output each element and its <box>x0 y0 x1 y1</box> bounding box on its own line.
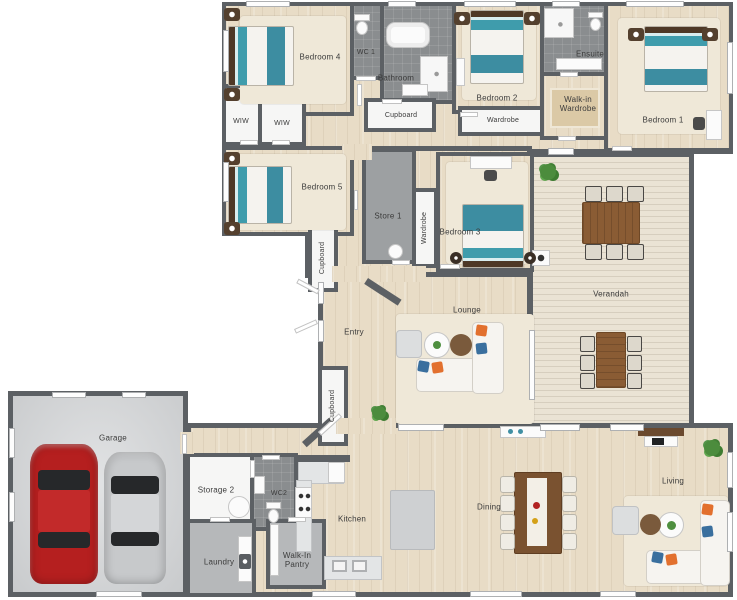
label-store1: Store 1 <box>374 211 401 220</box>
door-walkin-wardrobe <box>558 136 576 141</box>
wall-kitchen-north <box>296 455 350 462</box>
window <box>52 392 86 398</box>
desk-bedroom3 <box>470 156 512 169</box>
opening-hall-entry <box>332 266 426 282</box>
flower-decor <box>533 502 540 509</box>
ensuite-vanity <box>556 58 602 70</box>
outdoor-chair <box>580 373 595 389</box>
door-ensuite <box>560 72 578 77</box>
door-bedroom5 <box>354 190 358 210</box>
label-verandah: Verandah <box>593 289 629 298</box>
nightstand <box>702 28 718 41</box>
outdoor-chair <box>580 336 595 352</box>
window <box>246 1 290 7</box>
label-wiw1: WIW <box>233 118 249 126</box>
label-wc1: WC 1 <box>357 49 375 57</box>
stove <box>295 487 312 518</box>
outdoor-chair <box>627 355 642 371</box>
window <box>727 42 733 94</box>
label-garage: Garage <box>99 433 127 442</box>
dining-chair <box>562 533 577 550</box>
bed-bedroom1 <box>644 26 708 92</box>
window <box>552 1 580 7</box>
ottoman <box>640 514 661 535</box>
outdoor-chair <box>627 244 644 260</box>
window <box>223 30 229 72</box>
label-wiw2: WIW <box>274 120 290 128</box>
red-car <box>30 444 98 584</box>
nightstand <box>628 28 644 41</box>
label-walkin-wardrobe: Walk-in Wardrobe <box>554 95 602 113</box>
door-wc2 <box>262 455 280 460</box>
plant <box>540 164 556 180</box>
pillow <box>417 360 430 373</box>
sliding-door <box>540 424 580 431</box>
sliding-door <box>529 330 535 400</box>
nightstand <box>454 12 470 25</box>
outdoor-chair <box>606 244 623 260</box>
car-roof <box>38 490 90 532</box>
entry-door-opening <box>318 320 324 342</box>
bed-bedroom2 <box>470 10 524 84</box>
window <box>464 1 516 7</box>
outdoor-table-small <box>596 332 626 388</box>
wc2-sink <box>254 476 265 494</box>
outdoor-chair <box>580 355 595 371</box>
label-cupboard2: Cupboard <box>319 242 327 274</box>
opening-entry-kitchen <box>336 418 396 434</box>
opening-hall-north <box>342 144 372 160</box>
dining-chair <box>500 476 515 493</box>
window <box>9 428 15 458</box>
door-bedroom2 <box>460 112 478 117</box>
armchair <box>612 506 639 535</box>
label-storage2: Storage 2 <box>198 485 235 494</box>
ensuite-shower <box>544 8 574 38</box>
window <box>626 1 684 7</box>
label-bedroom5: Bedroom 5 <box>302 182 343 191</box>
toilet-tank <box>354 14 370 21</box>
door-bedroom3 <box>440 264 460 269</box>
desk-bedroom2 <box>456 58 465 86</box>
window <box>727 452 733 488</box>
label-walkin-pantry: Walk-In Pantry <box>276 551 318 569</box>
label-bedroom3: Bedroom 3 <box>440 227 481 236</box>
sideboard-decor <box>518 429 523 434</box>
pillow <box>665 553 678 566</box>
dining-chair <box>500 495 515 512</box>
plant <box>704 440 720 456</box>
ottoman <box>450 334 472 356</box>
label-bedroom1: Bedroom 1 <box>643 115 684 124</box>
window <box>398 424 444 431</box>
dining-chair <box>500 533 515 550</box>
outdoor-chair <box>585 186 602 202</box>
label-wardrobe2: Wardrobe <box>421 212 429 244</box>
car-windshield <box>38 470 90 490</box>
window <box>470 591 522 597</box>
pillow <box>701 503 713 515</box>
washing-machine <box>239 554 251 569</box>
dining-chair <box>562 514 577 531</box>
fridge <box>328 462 345 483</box>
window <box>223 162 229 202</box>
nightstand <box>224 88 240 101</box>
door-pantry <box>288 517 306 522</box>
pillow <box>431 361 444 374</box>
door-laundry <box>210 517 230 522</box>
verandah-door <box>548 148 574 155</box>
outdoor-table <box>582 202 640 244</box>
toilet-bowl <box>590 18 601 31</box>
door-wiw2 <box>272 140 290 145</box>
nightstand <box>224 222 240 235</box>
bed-bedroom5 <box>228 166 292 224</box>
outdoor-chair <box>606 186 623 202</box>
door-bedroom4 <box>357 84 362 106</box>
sliding-door <box>610 424 644 431</box>
label-kitchen: Kitchen <box>338 514 366 523</box>
door-storage2 <box>250 460 255 478</box>
pillow <box>651 551 664 564</box>
label-bedroom4: Bedroom 4 <box>300 52 341 61</box>
desk-chair <box>693 117 705 130</box>
car-roof <box>111 494 159 532</box>
toilet-bowl <box>356 21 368 35</box>
nightstand <box>524 12 540 25</box>
door-bedroom1 <box>612 146 632 151</box>
table-plant <box>667 521 676 530</box>
pillow <box>475 342 487 354</box>
dining-chair <box>562 495 577 512</box>
door-wiw1 <box>240 140 258 145</box>
car-windshield <box>111 476 159 494</box>
label-laundry: Laundry <box>204 557 234 566</box>
label-entry: Entry <box>344 327 364 336</box>
outdoor-chair <box>627 373 642 389</box>
door-store1 <box>392 260 410 265</box>
desk-chair <box>484 170 497 181</box>
pillow <box>701 525 713 537</box>
label-lounge: Lounge <box>453 305 481 314</box>
silver-car <box>104 452 166 584</box>
window <box>388 1 416 7</box>
label-dining: Dining <box>477 502 501 511</box>
car-rear-window <box>111 532 159 546</box>
dining-chair <box>500 514 515 531</box>
window <box>727 512 733 552</box>
kitchen-sink <box>332 560 347 572</box>
tv-shelf <box>638 428 684 436</box>
kitchen-sink <box>352 560 367 572</box>
door-bathroom <box>382 99 402 104</box>
entry-door-opening <box>318 282 324 304</box>
nightstand <box>224 8 240 21</box>
car-rear-window <box>38 532 90 548</box>
bathroom-sink <box>402 84 428 96</box>
sideboard-decor <box>508 429 513 434</box>
window <box>312 591 356 597</box>
window <box>600 591 636 597</box>
table-runner <box>527 478 547 546</box>
flower-decor <box>532 518 538 524</box>
plant <box>372 406 386 420</box>
outdoor-chair <box>585 244 602 260</box>
window <box>9 492 15 522</box>
label-living: Living <box>662 476 684 485</box>
bedside-speaker <box>524 252 536 264</box>
toilet-bowl <box>268 509 279 523</box>
outdoor-chair <box>627 186 644 202</box>
storage-ottoman <box>228 496 250 518</box>
garage-door <box>96 591 142 597</box>
bathtub <box>386 22 430 48</box>
pillow <box>475 324 487 336</box>
floor-plan: Bedroom 4 WC 1 Bathroom Cupboard Bedroom… <box>0 0 737 600</box>
door-garage <box>182 434 187 454</box>
outdoor-chair <box>627 336 642 352</box>
bed-bedroom4 <box>228 26 294 86</box>
label-wc2: WC2 <box>271 490 287 498</box>
label-bedroom2: Bedroom 2 <box>477 93 518 102</box>
table-plant <box>433 341 441 349</box>
door-wc1 <box>356 76 376 81</box>
label-wardrobe1: Wardrobe <box>487 117 519 125</box>
label-cupboard3: Cupboard <box>329 390 337 422</box>
armchair <box>396 330 422 358</box>
toilet-tank <box>266 502 281 509</box>
tv-icon <box>652 438 664 445</box>
desk-bedroom1 <box>706 110 722 140</box>
label-cupboard1: Cupboard <box>385 112 417 120</box>
kitchen-island <box>390 490 435 550</box>
bedside-speaker <box>450 252 462 264</box>
entry-door-leaf <box>294 319 318 333</box>
window <box>122 392 146 398</box>
dining-chair <box>562 476 577 493</box>
store-item <box>388 244 403 259</box>
label-bathroom: Bathroom <box>378 73 414 82</box>
label-ensuite: Ensuite <box>576 49 604 58</box>
